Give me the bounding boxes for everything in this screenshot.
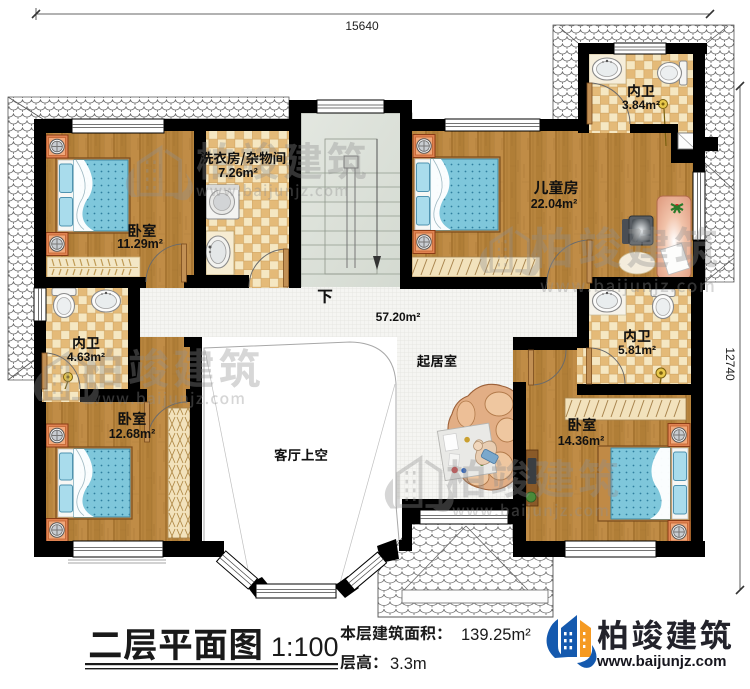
svg-text:14.36m²: 14.36m²: [558, 434, 605, 448]
svg-text:www.baijunjz.com: www.baijunjz.com: [596, 653, 726, 670]
svg-text:15640: 15640: [345, 19, 379, 33]
svg-text:1:100: 1:100: [271, 632, 339, 662]
svg-text:3.3m: 3.3m: [390, 655, 427, 673]
svg-text:3.84m²: 3.84m²: [622, 98, 660, 112]
svg-text:12.68m²: 12.68m²: [109, 427, 156, 441]
svg-text:57.20m²: 57.20m²: [376, 310, 421, 324]
svg-text:139.25m²: 139.25m²: [461, 626, 531, 644]
svg-text:7.26m²: 7.26m²: [218, 166, 258, 180]
svg-text:11.29m²: 11.29m²: [117, 237, 163, 251]
svg-text:12740: 12740: [723, 347, 737, 381]
svg-text:4.63m²: 4.63m²: [67, 350, 105, 364]
svg-text:22.04m²: 22.04m²: [531, 197, 578, 211]
svg-text:5.81m²: 5.81m²: [618, 343, 656, 357]
